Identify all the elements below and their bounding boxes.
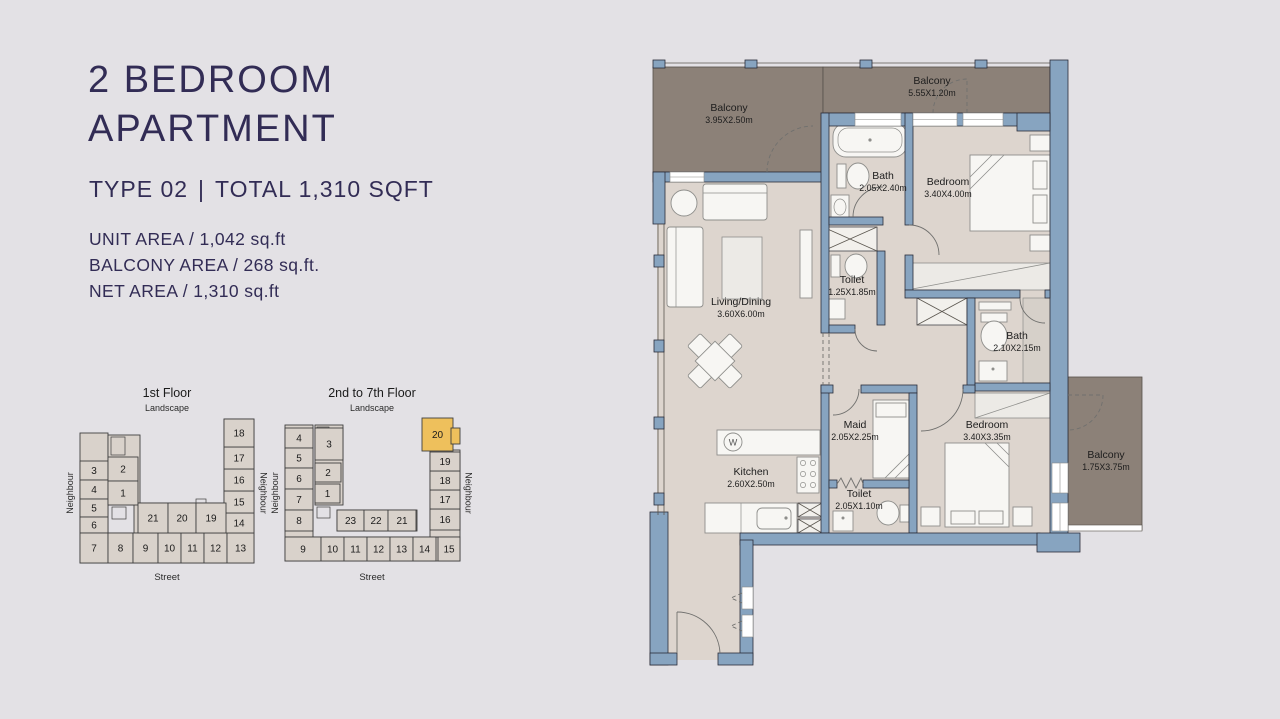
room-dims-label: 2.05X2.40m xyxy=(859,183,906,193)
washer-label: W xyxy=(729,438,738,448)
keyplan-2-drawing: 4567891011121314151617181920321232221 xyxy=(283,415,461,565)
keyplan-1st-floor: 1st Floor Landscape Neighbour Neighbour … xyxy=(76,386,258,583)
keyplan-2-neighbour-right: Neighbour xyxy=(464,472,474,514)
net-area-line: NET AREA / 1,310 sq.ft xyxy=(89,278,320,304)
area-summary: UNIT AREA / 1,042 sq.ft BALCONY AREA / 2… xyxy=(89,226,320,304)
keyplan-unit-number: 17 xyxy=(439,495,451,506)
keyplan-unit-number: 9 xyxy=(300,545,306,556)
apartment-floorplan: W xyxy=(645,55,1170,675)
keyplan-1-neighbour-left: Neighbour xyxy=(65,472,75,514)
keyplan-1-landscape-label: Landscape xyxy=(76,403,258,413)
keyplan-unit-number: 20 xyxy=(176,514,188,525)
room-name-label: Maid xyxy=(844,419,867,431)
keyplan-unit-number: 1 xyxy=(120,489,126,500)
keyplan-1-drawing: 345678910111213141516171821212019 xyxy=(78,415,256,565)
keyplan-unit-number: 6 xyxy=(91,521,97,532)
keyplan-unit-number: 2 xyxy=(325,468,331,479)
keyplan-unit-number: 14 xyxy=(419,545,431,556)
keyplan-unit-number: 14 xyxy=(233,519,245,530)
keyplan-1-neighbour-right: Neighbour xyxy=(259,472,269,514)
pillow xyxy=(1033,161,1047,189)
keyplan-2nd-7th-floor: 2nd to 7th Floor Landscape Neighbour Nei… xyxy=(281,386,463,583)
keyplan-unit-number: 2 xyxy=(120,465,126,476)
nightstand xyxy=(921,507,940,526)
sofa-left xyxy=(667,227,703,307)
keyplan-unit-number: 1 xyxy=(325,489,331,500)
keyplan-unit-number: 10 xyxy=(327,545,339,556)
room-dims-label: 5.55X1.20m xyxy=(908,88,955,98)
title-line-1: 2 BEDROOM xyxy=(88,56,337,105)
keyplan-unit-number: 18 xyxy=(439,476,451,487)
keyplan-unit-number: 23 xyxy=(345,516,357,527)
room-name-label: Balcony xyxy=(913,75,951,87)
room-dims-label: 3.95X2.50m xyxy=(705,115,752,125)
keyplan-unit-number: 5 xyxy=(91,504,97,515)
room-name-label: Balcony xyxy=(1087,449,1125,461)
room-name-label: Bath xyxy=(1006,330,1028,342)
subtitle-divider: | xyxy=(198,176,205,202)
room-name-label: Bath xyxy=(872,170,894,182)
keyplan-2-title: 2nd to 7th Floor xyxy=(281,386,463,400)
room-name-label: Balcony xyxy=(710,102,748,114)
keyplan-unit-tab xyxy=(451,428,460,444)
room-dims-label: 3.60X6.00m xyxy=(717,309,764,319)
nightstand xyxy=(1030,135,1050,151)
pillow xyxy=(979,511,1003,524)
tv-unit xyxy=(800,230,812,298)
total-label: TOTAL 1,310 SQFT xyxy=(215,176,434,202)
toilet-tank xyxy=(831,255,840,277)
room-name-label: Bedroom xyxy=(966,419,1009,431)
keyplan-unit-number: 5 xyxy=(296,454,302,465)
type-total-line: TYPE 02|TOTAL 1,310 SQFT xyxy=(89,176,434,203)
coffee-table xyxy=(722,237,762,299)
room-dims-label: 2.10X2.15m xyxy=(993,343,1040,353)
keyplan-unit-number: 3 xyxy=(326,440,332,451)
room-name-label: Toilet xyxy=(840,274,865,286)
keyplan-unit-number: 11 xyxy=(350,545,361,556)
nightstand xyxy=(1013,507,1032,526)
toilet-tank xyxy=(837,164,846,188)
keyplan-unit-number: 16 xyxy=(439,515,451,526)
room-dims-label: 3.40X4.00m xyxy=(924,189,971,199)
keyplan-unit-number: 16 xyxy=(233,476,245,487)
keyplan-unit-number: 9 xyxy=(143,544,149,555)
toilet2-sink xyxy=(833,511,853,531)
keyplan-1-title: 1st Floor xyxy=(76,386,258,400)
room-dims-label: 2.60X2.50m xyxy=(727,479,774,489)
room-name-label: Living/Dining xyxy=(711,296,771,308)
keyplan-unit-number: 19 xyxy=(205,514,217,525)
keyplan-unit-number: 6 xyxy=(296,474,302,485)
entry-corridor-floor xyxy=(668,515,740,660)
title-line-2: APARTMENT xyxy=(88,105,337,154)
keyplan-unit-number: 13 xyxy=(396,545,408,556)
keyplan-unit-number: 20 xyxy=(432,430,444,441)
keyplan-unit-number: 21 xyxy=(396,516,408,527)
keyplan-2-street-label: Street xyxy=(281,572,463,583)
room-name-label: Kitchen xyxy=(733,466,768,478)
pillow xyxy=(951,511,975,524)
keyplan-unit-number: 12 xyxy=(210,544,222,555)
balcony-right-threshold xyxy=(1068,525,1142,531)
pillow xyxy=(1033,195,1047,223)
keyplan-unit-number: 3 xyxy=(91,466,97,477)
unit-area-line: UNIT AREA / 1,042 sq.ft xyxy=(89,226,320,252)
keyplan-2-landscape-label: Landscape xyxy=(281,403,463,413)
round-side-table xyxy=(671,190,697,216)
room-dims-label: 1.25X1.85m xyxy=(828,287,875,297)
keyplan-unit-number: 8 xyxy=(118,544,124,555)
pillow xyxy=(876,403,906,417)
keyplan-unit-number: 21 xyxy=(147,514,159,525)
keyplan-unit-number: 4 xyxy=(296,434,302,445)
floorplan-drawing: W xyxy=(645,55,1170,670)
keyplan-unit-number: 8 xyxy=(296,516,302,527)
room-name-label: Bedroom xyxy=(927,176,970,188)
keyplan-unit-number: 22 xyxy=(370,516,382,527)
keyplan-unit-number: 19 xyxy=(439,457,451,468)
keyplan-unit-number: 11 xyxy=(187,544,198,555)
room-dims-label: 2.05X1.10m xyxy=(835,501,882,511)
toilet-tank xyxy=(900,505,909,522)
keyplan-unit-number: 15 xyxy=(443,545,455,556)
keyplan-1-street-label: Street xyxy=(76,572,258,583)
type-label: TYPE 02 xyxy=(89,176,188,202)
keyplan-unit-number: 17 xyxy=(233,454,245,465)
keyplan-unit-number: 15 xyxy=(233,498,245,509)
keyplan-unit-number: 7 xyxy=(91,544,97,555)
room-dims-label: 1.75X3.75m xyxy=(1082,462,1129,472)
toilet1-sink xyxy=(829,299,845,319)
keyplan-unit-number: 4 xyxy=(91,485,97,496)
balcony-area-line: BALCONY AREA / 268 sq.ft. xyxy=(89,252,320,278)
nightstand xyxy=(1030,235,1050,251)
keyplan-unit-number: 10 xyxy=(164,544,176,555)
keyplan-unit-number: 13 xyxy=(235,544,247,555)
room-dims-label: 3.40X3.35m xyxy=(963,432,1010,442)
keyplan-2-neighbour-left: Neighbour xyxy=(270,472,280,514)
sofa-top xyxy=(703,184,767,220)
bath2-sink xyxy=(979,361,1007,381)
keyplan-unit-number: 18 xyxy=(233,429,245,440)
room-name-label: Toilet xyxy=(847,488,872,500)
page-title: 2 BEDROOM APARTMENT xyxy=(88,56,337,154)
keyplan-unit-number: 12 xyxy=(373,545,385,556)
shelf xyxy=(979,302,1011,310)
room-dims-label: 2.05X2.25m xyxy=(831,432,878,442)
faucet-dot xyxy=(784,516,787,519)
keyplan-unit-number: 7 xyxy=(296,495,302,506)
